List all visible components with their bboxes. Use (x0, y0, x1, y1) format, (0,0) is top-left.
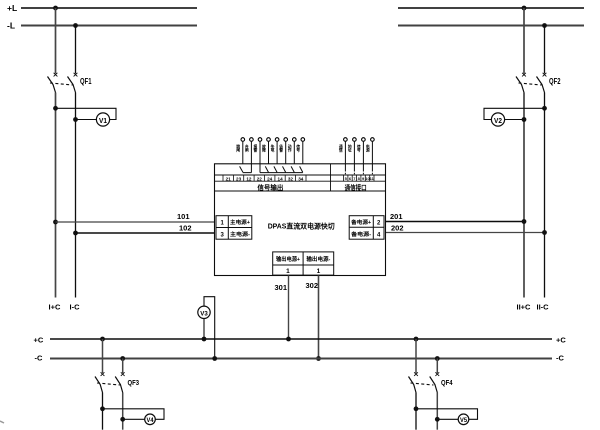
svg-text:201: 201 (390, 212, 403, 221)
svg-text:信号输出: 信号输出 (257, 183, 283, 192)
svg-text:警: 警 (253, 148, 258, 153)
svg-text:+C: +C (556, 336, 566, 345)
svg-text:202: 202 (391, 224, 404, 233)
svg-text:QF1: QF1 (80, 77, 92, 86)
svg-text:V1: V1 (99, 118, 107, 125)
svg-text:2: 2 (377, 221, 381, 227)
svg-text:闸: 闸 (236, 148, 240, 153)
svg-text:22: 22 (257, 176, 263, 181)
svg-text:输出电源+: 输出电源+ (276, 255, 300, 263)
svg-text:输出电源-: 输出电源- (306, 255, 330, 263)
svg-text:主电源+: 主电源+ (230, 218, 250, 226)
svg-text:+L: +L (7, 3, 17, 13)
svg-text:34: 34 (298, 176, 304, 181)
svg-text:QF2: QF2 (549, 77, 561, 86)
svg-text:8: 8 (358, 176, 361, 181)
svg-text:4: 4 (377, 233, 381, 239)
svg-text:-L: -L (7, 21, 15, 31)
svg-text:301: 301 (275, 283, 288, 292)
svg-text:QF3: QF3 (128, 378, 140, 387)
svg-text:-C: -C (556, 354, 564, 363)
svg-text:作: 作 (288, 148, 292, 153)
svg-text:24: 24 (267, 176, 273, 181)
svg-text:II+C: II+C (517, 303, 532, 312)
svg-text:主电源-: 主电源- (230, 230, 250, 238)
svg-text:号: 号 (296, 148, 300, 153)
svg-text:V4: V4 (147, 418, 155, 424)
svg-text:7: 7 (353, 176, 356, 181)
svg-text:电: 电 (271, 148, 275, 153)
svg-text:23: 23 (236, 176, 242, 181)
svg-text:源: 源 (366, 148, 370, 153)
svg-text:12: 12 (246, 176, 252, 181)
svg-text:6: 6 (349, 176, 352, 181)
svg-text:-C: -C (35, 354, 43, 363)
svg-text:警: 警 (278, 148, 283, 153)
svg-text:1: 1 (317, 268, 321, 275)
svg-text:备电源+: 备电源+ (350, 218, 371, 226)
svg-text:II-C: II-C (537, 303, 550, 312)
svg-text:1: 1 (286, 268, 290, 275)
svg-text:备电源-: 备电源- (350, 230, 371, 238)
svg-text:+C: +C (34, 336, 44, 345)
svg-text:302: 302 (306, 281, 319, 290)
svg-text:障: 障 (262, 148, 266, 153)
svg-text:号: 号 (357, 148, 361, 153)
svg-text:QF4: QF4 (441, 378, 453, 387)
svg-text:DPAS直流双电源快切: DPAS直流双电源快切 (268, 221, 335, 230)
svg-text:闸: 闸 (245, 148, 249, 153)
svg-text:I+C: I+C (49, 303, 61, 312)
svg-text:102: 102 (179, 224, 192, 233)
svg-text:I-C: I-C (70, 303, 81, 312)
svg-text:V2: V2 (494, 118, 502, 125)
svg-text:1: 1 (221, 221, 225, 227)
svg-text:32: 32 (288, 176, 294, 181)
svg-text:5: 5 (345, 176, 348, 181)
svg-text:14: 14 (278, 176, 284, 181)
svg-text:101: 101 (177, 212, 190, 221)
svg-text:信: 信 (339, 148, 343, 153)
svg-text:21: 21 (226, 176, 232, 181)
svg-text:V3: V3 (200, 310, 208, 317)
svg-text:通信接口: 通信接口 (345, 183, 367, 192)
svg-text:V5: V5 (460, 418, 468, 424)
svg-text:3: 3 (221, 233, 225, 239)
svg-text:址: 址 (347, 148, 352, 153)
